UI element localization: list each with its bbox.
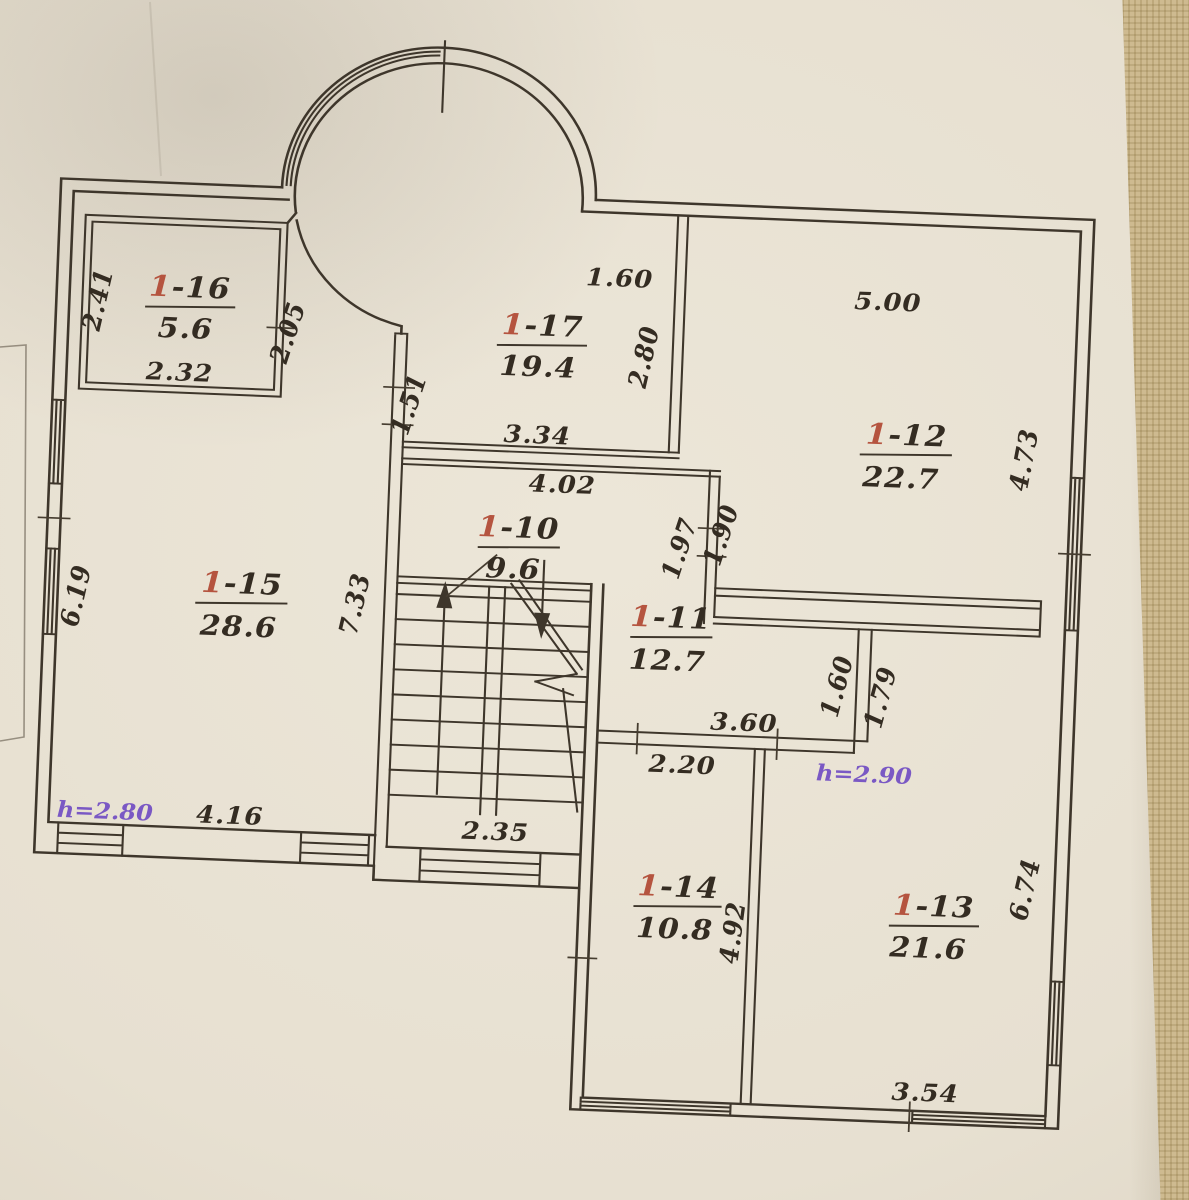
photo-background: 1-16 5.6 1-17 19.4 1-12 22.7 [0, 0, 1189, 1200]
svg-text:1-13: 1-13 [892, 889, 975, 926]
dimension-1-16-bottom: 2.32 [144, 356, 213, 388]
window-stair-bottom [419, 848, 540, 886]
stair-up-arrow-shaft [437, 594, 445, 794]
dim-tick-bottom-wall [909, 1102, 910, 1131]
room-label-1-17: 1-17 19.4 [496, 308, 587, 385]
room-label-1-14: 1-14 10.8 [633, 869, 722, 947]
dimension-1-16-left: 2.41 [75, 266, 120, 334]
dimension-1-15-bottom: 4.16 [196, 799, 264, 831]
dimension-1-17-top: 1.60 [585, 262, 653, 294]
dimension-1-12-right: 4.73 [1002, 426, 1044, 493]
dimension-wall-190: 1.90 [696, 501, 746, 569]
adjacent-sheet-edge [0, 345, 26, 741]
dimension-1-14-top: 2.20 [647, 749, 716, 781]
dimension-1-16-door: 2.05 [262, 298, 312, 367]
paper-crease [150, 2, 161, 176]
wall-tick-1-14 [568, 957, 596, 958]
dimension-1-15-left: 6.19 [53, 562, 98, 629]
svg-text:1-16: 1-16 [149, 270, 232, 307]
bay-apex-tick [442, 41, 445, 112]
dim-tick-left-wall [39, 517, 70, 518]
dimension-1-17-right: 2.80 [621, 323, 666, 391]
dimension-1-13-right: 6.74 [1002, 856, 1047, 923]
svg-text:1-17: 1-17 [501, 308, 584, 345]
window-1-15-bottom-1 [57, 822, 123, 855]
dimension-hall-top: 4.02 [528, 468, 596, 500]
bay-outer-arc [282, 41, 602, 199]
windows [15, 399, 1094, 1137]
stair-break-line [502, 580, 586, 812]
room-label-1-15: 1-15 28.6 [195, 566, 288, 645]
room-1-12-left-wall [669, 215, 689, 452]
bay-window-glazing [287, 46, 440, 191]
bay-rotunda [276, 35, 602, 341]
floor-plan-drawing: 1-16 5.6 1-17 19.4 1-12 22.7 [0, 0, 1189, 1200]
room-label-1-11: 1-11 12.7 [628, 600, 713, 679]
height-note-1-15: h=2.80 [56, 797, 153, 827]
svg-text:1-11: 1-11 [630, 600, 713, 637]
svg-text:22.7: 22.7 [861, 460, 940, 496]
floor-plan: 1-16 5.6 1-17 19.4 1-12 22.7 [15, 26, 1109, 1138]
svg-text:12.7: 12.7 [628, 642, 706, 678]
dimension-stair-bottom: 2.35 [460, 815, 529, 847]
dimension-1-12-top: 5.00 [854, 286, 922, 318]
room-1-12-bottom-wall [714, 588, 1041, 636]
svg-text:5.6: 5.6 [157, 311, 213, 346]
svg-text:19.4: 19.4 [499, 349, 577, 385]
room-label-1-16: 1-16 5.6 [145, 269, 236, 346]
svg-text:1-14: 1-14 [637, 869, 720, 906]
svg-text:10.8: 10.8 [635, 911, 713, 947]
dimension-1-17-bottom: 3.34 [503, 419, 571, 451]
staircase [388, 551, 592, 818]
svg-text:21.6: 21.6 [888, 930, 967, 966]
dimension-1-11-right: 1.60 [813, 652, 860, 720]
interior-partitions [377, 205, 1056, 1115]
svg-text:1-15: 1-15 [201, 566, 284, 603]
dimension-wall-197: 1.97 [654, 514, 704, 582]
stair-treads [389, 594, 591, 803]
dimension-1-17-left: 1.51 [384, 370, 434, 438]
svg-text:1-12: 1-12 [865, 417, 948, 454]
dim-tick-right-wall [1059, 554, 1090, 555]
dimension-1-13-left: 1.79 [857, 663, 904, 731]
dimension-1-11-bottom: 3.60 [710, 706, 778, 738]
room-label-1-12: 1-12 22.7 [859, 417, 952, 496]
dimension-1-13-bottom: 3.54 [891, 1077, 959, 1109]
stair-stringers [480, 587, 505, 815]
window-1-15-bottom-2 [300, 832, 369, 865]
room-label-1-10: 1-10 9.6 [476, 510, 561, 587]
svg-text:28.6: 28.6 [198, 608, 277, 644]
svg-text:9.6: 9.6 [485, 551, 541, 586]
room-label-1-13: 1-13 21.6 [888, 888, 979, 966]
height-note-1-13: h=2.90 [815, 760, 912, 790]
dimension-1-15-right: 7.33 [332, 570, 377, 637]
svg-text:1-10: 1-10 [477, 510, 560, 547]
